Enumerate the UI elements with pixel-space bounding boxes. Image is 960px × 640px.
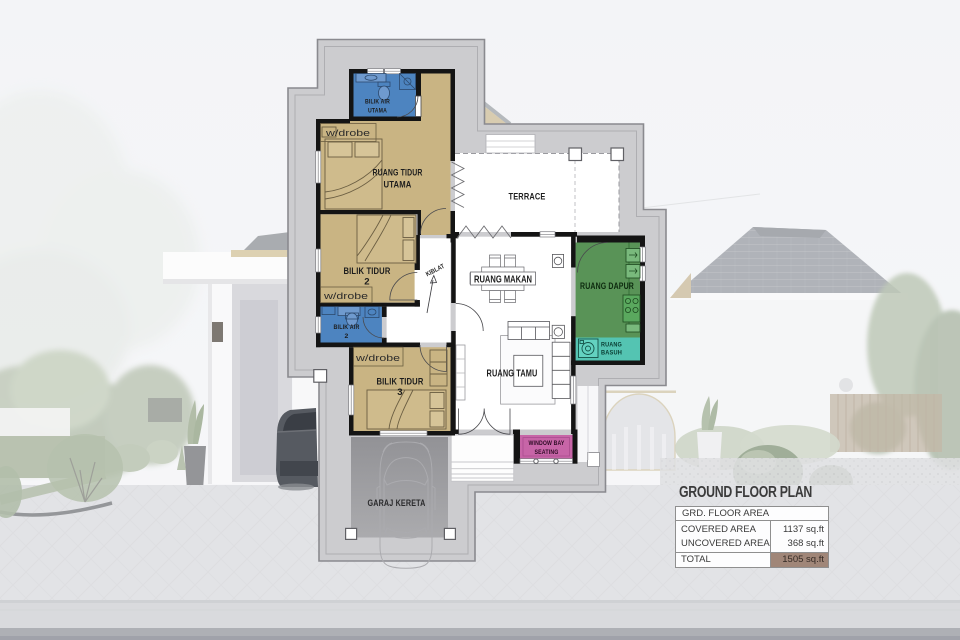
svg-text:UTAMA: UTAMA — [384, 180, 412, 191]
svg-text:BILIK TIDUR: BILIK TIDUR — [377, 377, 424, 388]
svg-text:w/drobe: w/drobe — [323, 291, 369, 301]
svg-text:BILIK AIR: BILIK AIR — [365, 99, 390, 106]
svg-text:RUANG: RUANG — [601, 342, 622, 349]
svg-text:RUANG DAPUR: RUANG DAPUR — [580, 280, 634, 291]
svg-text:RUANG MAKAN: RUANG MAKAN — [474, 275, 532, 286]
svg-text:WINDOW BAY: WINDOW BAY — [529, 440, 565, 447]
svg-text:3: 3 — [397, 387, 403, 398]
svg-text:GARAJ KERETA: GARAJ KERETA — [368, 497, 426, 508]
svg-text:2: 2 — [345, 333, 349, 340]
svg-text:BASUH: BASUH — [601, 350, 622, 357]
svg-text:BILIK AIR: BILIK AIR — [334, 324, 360, 331]
svg-text:2: 2 — [364, 277, 370, 288]
svg-text:UTAMA: UTAMA — [368, 108, 387, 115]
svg-text:RUANG TIDUR: RUANG TIDUR — [373, 168, 423, 179]
svg-text:BILIK TIDUR: BILIK TIDUR — [344, 266, 391, 277]
svg-text:w/drobe: w/drobe — [355, 353, 401, 363]
svg-text:TERRACE: TERRACE — [509, 191, 546, 202]
svg-text:w/drobe: w/drobe — [325, 128, 371, 138]
svg-text:RUANG TAMU: RUANG TAMU — [487, 368, 538, 380]
svg-text:SEATING: SEATING — [535, 449, 559, 456]
